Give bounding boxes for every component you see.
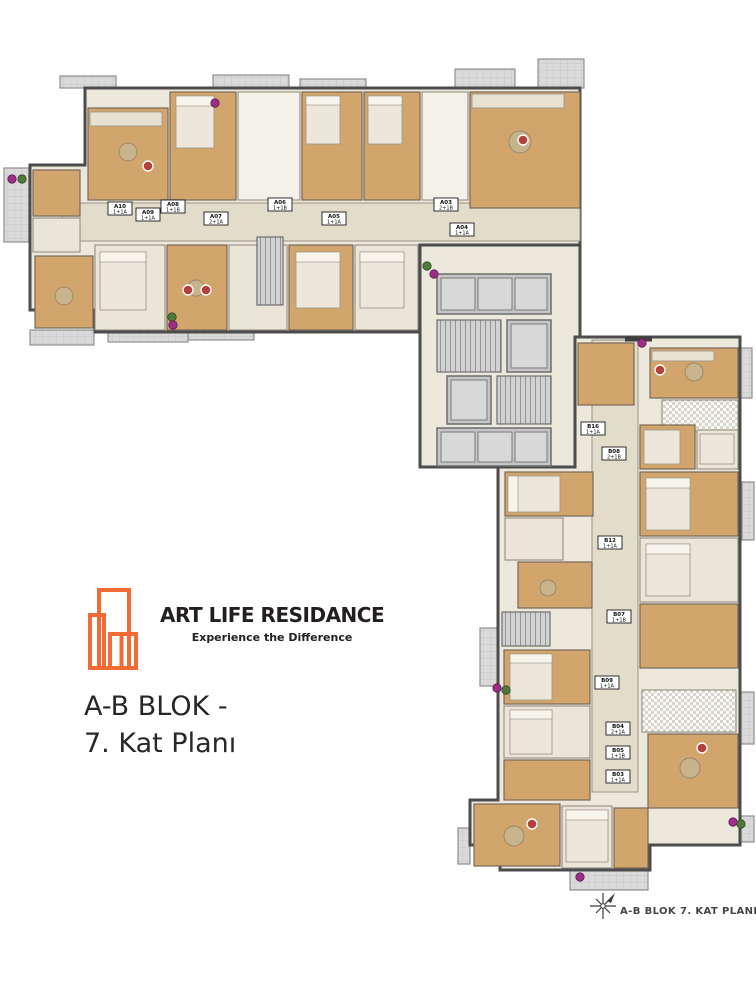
stairs-right-wing	[502, 612, 550, 646]
svg-text:1+1A: 1+1A	[586, 430, 601, 436]
floor-plan-poster: A101+1AA091+1AA081+1BA072+1AA061+1BA051+…	[0, 0, 756, 1008]
brand-subtitle: Experience the Difference	[160, 631, 384, 644]
unit-label-B04: B042+1A	[606, 722, 630, 736]
plant-magenta-icon	[729, 818, 737, 826]
unit-label-B09: B091+1A	[595, 676, 619, 690]
stairs-core-upper	[437, 320, 501, 372]
svg-text:2+1B: 2+1B	[607, 455, 622, 461]
svg-text:1+1A: 1+1A	[600, 684, 615, 690]
svg-text:1+1A: 1+1A	[455, 231, 470, 237]
unit-label-A09: A091+1A	[136, 208, 160, 222]
plant-green-icon	[502, 686, 510, 694]
unit-label-B08: B082+1B	[602, 447, 626, 461]
svg-text:1+1A: 1+1A	[113, 210, 128, 216]
unit-label-B03: B031+1A	[606, 770, 630, 784]
brand-title: ART LIFE RESIDANCE	[160, 603, 390, 627]
plant-magenta-icon	[493, 684, 501, 692]
unit-label-B05: B051+1B	[606, 746, 630, 760]
plant-magenta-icon	[211, 99, 219, 107]
plan-title: A-B BLOK - 7. Kat Planı	[84, 688, 236, 762]
svg-text:1+1A: 1+1A	[327, 220, 342, 226]
plant-magenta-icon	[576, 873, 584, 881]
plant-magenta-icon	[8, 175, 16, 183]
unit-label-A05: A051+1A	[322, 212, 346, 226]
svg-text:1+1A: 1+1A	[611, 778, 626, 784]
plan-title-line1: A-B BLOK -	[84, 688, 236, 725]
plant-magenta-icon	[638, 339, 646, 347]
stairs-core-lower	[497, 376, 551, 424]
svg-text:2+1A: 2+1A	[209, 220, 224, 226]
plan-title-line2: 7. Kat Planı	[84, 725, 236, 762]
unit-label-B07: B071+1B	[607, 610, 631, 624]
stairs-top-wing	[257, 237, 283, 305]
svg-text:1+1B: 1+1B	[166, 208, 181, 214]
svg-text:1+1B: 1+1B	[612, 618, 627, 624]
unit-label-A10: A101+1A	[108, 202, 132, 216]
svg-text:2+1A: 2+1A	[611, 730, 626, 736]
plant-green-icon	[737, 820, 745, 828]
floor-plan: A101+1AA091+1AA081+1BA072+1AA061+1BA051+…	[0, 0, 756, 1008]
unit-label-A07: A072+1A	[204, 212, 228, 226]
plant-green-icon	[168, 313, 176, 321]
svg-text:2+1B: 2+1B	[439, 206, 454, 212]
compass-label: A-B BLOK 7. KAT PLANI	[620, 906, 756, 917]
plant-green-icon	[18, 175, 26, 183]
logo-buildings-icon	[88, 588, 140, 670]
unit-label-B16: B161+1A	[581, 422, 605, 436]
unit-label-A03: A032+1B	[434, 198, 458, 212]
unit-label-B12: B121+1A	[598, 536, 622, 550]
unit-label-A04: A041+1A	[450, 223, 474, 237]
plant-green-icon	[423, 262, 431, 270]
svg-text:1+1B: 1+1B	[273, 206, 288, 212]
unit-label-A06: A061+1B	[268, 198, 292, 212]
svg-text:1+1A: 1+1A	[141, 216, 156, 222]
svg-text:1+1B: 1+1B	[611, 754, 626, 760]
unit-label-A08: A081+1B	[161, 200, 185, 214]
compass-icon	[590, 893, 616, 919]
plant-magenta-icon	[430, 270, 438, 278]
svg-text:1+1A: 1+1A	[603, 544, 618, 550]
plant-magenta-icon	[169, 321, 177, 329]
